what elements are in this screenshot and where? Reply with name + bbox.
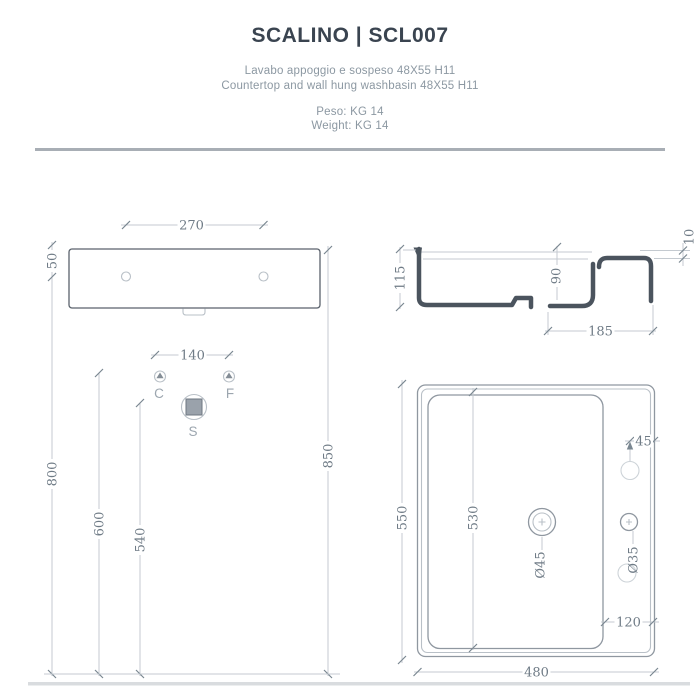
drain-diameter-label: Ø45 bbox=[534, 551, 549, 578]
drain-label: S bbox=[188, 424, 197, 439]
optional-hole-top bbox=[621, 462, 639, 480]
dim-850-label: 850 bbox=[322, 444, 337, 469]
dim-800-label: 800 bbox=[46, 462, 61, 487]
dim-600-label: 600 bbox=[93, 512, 108, 537]
dim-540-label: 540 bbox=[134, 528, 149, 553]
dim-185-label: 185 bbox=[588, 325, 613, 340]
dim-140-label: 140 bbox=[180, 349, 205, 364]
plan-rim-edge bbox=[422, 389, 651, 653]
drain-square-icon bbox=[186, 399, 202, 415]
hot-water-triangle-icon bbox=[225, 373, 232, 379]
plan-view: 550 530 480 120 45 bbox=[395, 380, 660, 681]
dim-10-label: 10 bbox=[683, 229, 698, 246]
tap-center-cross-icon bbox=[626, 519, 632, 525]
spec-sheet: SCALINO | SCL007 Lavabo appoggio e sospe… bbox=[0, 0, 700, 700]
dim-115-label: 115 bbox=[394, 266, 409, 291]
dim-50-label: 50 bbox=[46, 253, 61, 270]
hot-water-label: F bbox=[226, 386, 234, 401]
technical-drawing: 270 115 90 bbox=[0, 0, 700, 700]
dim-120-label: 120 bbox=[616, 616, 641, 631]
overflow-notch bbox=[183, 309, 205, 316]
dim-550-label: 550 bbox=[396, 506, 411, 531]
ground-bar bbox=[28, 682, 690, 686]
cold-water-label: C bbox=[154, 386, 164, 401]
back-view: 270 bbox=[69, 218, 320, 315]
dim-270-label: 270 bbox=[179, 219, 204, 234]
drain-center-cross-icon bbox=[539, 519, 546, 526]
dim-480-label: 480 bbox=[524, 666, 549, 681]
dim-45-label: 45 bbox=[635, 435, 652, 450]
section-view: 115 90 10 185 bbox=[393, 229, 698, 340]
dim-530-label: 530 bbox=[467, 506, 482, 531]
back-view-outline bbox=[69, 249, 320, 308]
dim-90-label: 90 bbox=[550, 268, 565, 285]
tap-diameter-label: Ø35 bbox=[627, 546, 642, 573]
section-profile-bowl bbox=[419, 249, 531, 307]
plan-bowl-outline bbox=[428, 395, 603, 649]
section-profile-deck bbox=[599, 258, 651, 301]
cold-water-triangle-icon bbox=[156, 373, 163, 379]
